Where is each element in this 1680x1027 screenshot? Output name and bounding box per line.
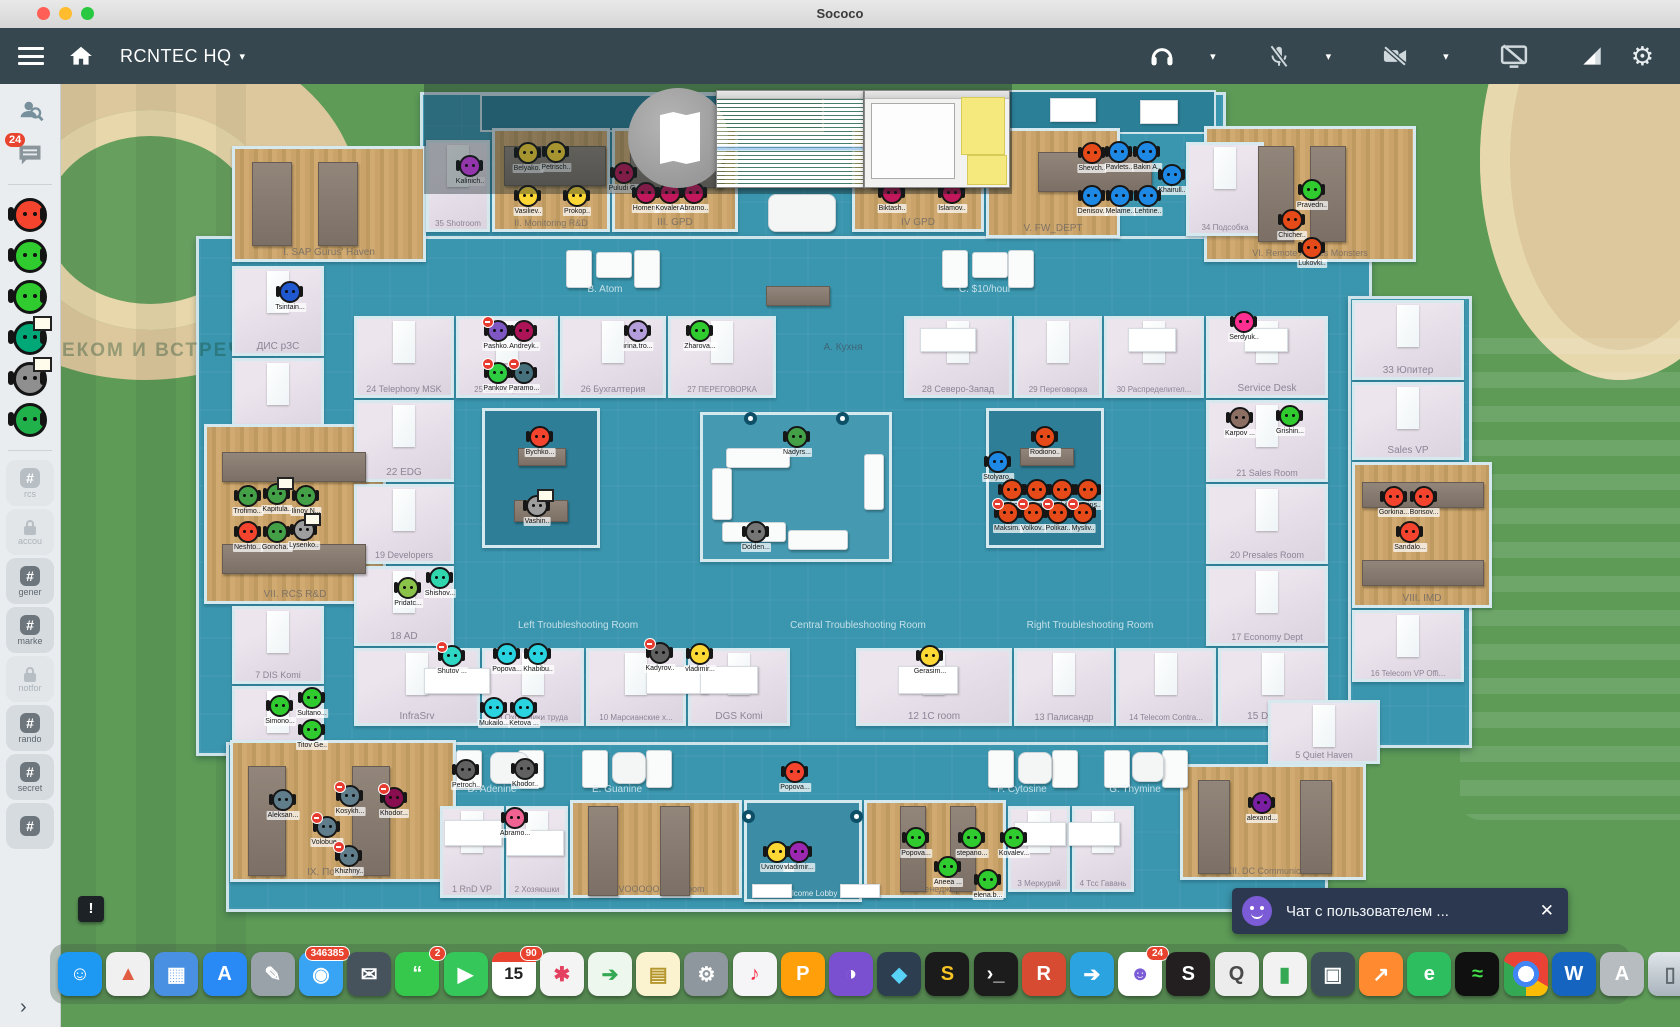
dock-sketch-icon[interactable]: S (925, 952, 969, 996)
dock-pixel-editor-icon[interactable]: ◆ (877, 952, 921, 996)
avatar-gerasim[interactable]: Gerasim... (919, 645, 941, 667)
sidebar-person-avatar-6[interactable] (13, 403, 47, 437)
sidebar-channel-secret[interactable]: #secret (6, 754, 54, 800)
chat-icon[interactable]: 24 (15, 141, 45, 174)
avatar-name-label: Khodor... (379, 809, 409, 818)
avatar-name-label: Popova... (779, 783, 811, 792)
room-label: 26 Бухгалтерия (565, 384, 661, 394)
room-4-тсс-гавань[interactable]: 4 Тсс Гавань (1072, 806, 1134, 892)
avatar-polikar[interactable]: Polikar.. (1047, 502, 1069, 524)
speaker-icon (836, 412, 849, 425)
do-not-disturb-badge (436, 641, 448, 653)
avatar-abramo[interactable]: Abramo... (504, 807, 526, 829)
avatar-denisov[interactable]: Denisov.. (1081, 185, 1103, 207)
avatar-name-label: Sultano... (296, 709, 328, 718)
dock-finder-icon[interactable]: ☺ (58, 952, 102, 996)
avatar-shishov[interactable]: Shishov... (429, 567, 451, 589)
avatar-kovalev[interactable]: Kovalev... (1003, 827, 1025, 849)
avatar-sultano[interactable]: Sultano... (301, 687, 323, 709)
dock-app-folder-icon[interactable]: A (1600, 952, 1644, 996)
room-17-economy-dept[interactable]: 17 Economy Dept (1206, 566, 1328, 646)
dock-mission-control-icon[interactable]: ▦ (154, 952, 198, 996)
do-not-disturb-badge (378, 783, 390, 795)
room-33-юпитер[interactable]: 33 Юпитер (1352, 300, 1464, 380)
screen-share-off-icon[interactable] (1499, 41, 1529, 71)
avatar-name-label: Kovalev... (998, 849, 1030, 858)
avatar-kadyrov[interactable]: Kadyrov.. (649, 642, 671, 664)
avatar-volobue[interactable]: Volobue... (316, 816, 338, 838)
room-label: 20 Presales Room (1211, 550, 1323, 560)
room-label: 22 EDG (359, 467, 449, 478)
channel-label: accou (18, 536, 42, 546)
camera-caret[interactable]: ▾ (1443, 50, 1449, 63)
avatar-melame[interactable]: Melame.. (1109, 185, 1131, 207)
room-label: 7 DIS Komi (237, 670, 319, 680)
room-label: 16 Telecom VP Offi... (1357, 669, 1459, 678)
room-label: IV GPD (857, 217, 979, 228)
room-label: 30 Распределител... (1109, 385, 1199, 394)
sidebar-person-avatar-2[interactable] (13, 239, 47, 273)
avatar-tsintain[interactable]: Tsintain... (279, 281, 301, 303)
screen-share-thumbnail-terminal[interactable] (716, 90, 864, 188)
avatar-name-label: Pavlets.. (1105, 163, 1134, 172)
couch (988, 750, 1014, 788)
avatar-name-label: Kosykh... (335, 807, 366, 816)
dock-preview-icon[interactable]: ✎ (251, 952, 295, 996)
hash-icon: # (20, 468, 40, 488)
window-titlebar: Sococo (0, 0, 1680, 29)
avatar-name-label: Kadyrov.. (644, 664, 675, 673)
room-label: 35 Shotroom (431, 219, 485, 228)
microphone-caret[interactable]: ▾ (1326, 50, 1332, 63)
divider (8, 184, 52, 185)
whiteboard (1140, 100, 1178, 124)
dock-badge: 90 (520, 946, 543, 961)
dock-word-icon[interactable]: W (1552, 952, 1596, 996)
desk (1300, 780, 1332, 874)
room-label: 27 ПЕРЕГОВОРКА (673, 385, 771, 394)
avatar-lehtine[interactable]: Lehtine.. (1137, 185, 1159, 207)
avatar-khodor[interactable]: Khodor... (383, 787, 405, 809)
room-label: 1 RnD VP (445, 884, 499, 894)
room-label: III. GPD (617, 217, 733, 228)
camera-muted-icon[interactable] (1381, 42, 1409, 70)
dock-sococo-icon[interactable]: ☻24 (1118, 952, 1162, 996)
couch (1162, 750, 1188, 788)
avatar-kapitula[interactable]: Kapitula.. (266, 483, 288, 505)
avatar-name-label: Gerasim... (913, 667, 947, 676)
room-label: Service Desk (1211, 383, 1323, 394)
room-13-палисандр[interactable]: 13 Палисандр (1014, 648, 1114, 726)
settings-gear-icon[interactable]: ⚙ (1631, 43, 1654, 69)
room-label: 10 Марсианские х... (591, 713, 681, 722)
avatar-rodiono[interactable]: Rodiono.. (1034, 426, 1056, 448)
dock: ☺▲▦A✎◉346385✉“2▶1590✱➔▤⚙♪P◑◆S›_R➔☻24SQ▮▣… (50, 944, 1630, 1004)
do-not-disturb-badge (992, 498, 1004, 510)
avatar-stepano[interactable]: stepano... (961, 827, 983, 849)
table (768, 194, 836, 232)
desk (252, 162, 292, 246)
avatar-andreyk[interactable]: Andreyk.. (513, 320, 535, 342)
avatar-name-label: Abramo.. (679, 204, 709, 213)
avatar-kosykh[interactable]: Kosykh... (339, 785, 361, 807)
avatar-name-label: Andreyk.. (508, 342, 540, 351)
avatar-name-label: irina.tro... (622, 342, 653, 351)
channel-label: marke (17, 636, 42, 646)
desk (766, 286, 830, 306)
space-name[interactable]: RCNTEC HQ (120, 46, 232, 67)
room-label: V. FW_DEPT (991, 223, 1115, 234)
avatar-pavlets[interactable]: Pavlets.. (1108, 141, 1130, 163)
sidebar-channel-marke[interactable]: #marke (6, 607, 54, 653)
dock-maps-icon[interactable]: ➔ (588, 952, 632, 996)
couch (566, 250, 592, 288)
avatar-name-label: stepano... (956, 849, 989, 858)
avatar-titov-ge[interactable]: Titov Ge.. (301, 719, 323, 741)
headset-icon[interactable] (1148, 42, 1176, 70)
hash-icon: # (20, 713, 40, 733)
sidebar-person-avatar-1[interactable] (13, 198, 47, 232)
sidebar-channel-gener[interactable]: #gener (6, 558, 54, 604)
dock-charts-icon[interactable]: ▮ (1263, 952, 1307, 996)
avatar-name-label: Bychko... (525, 448, 556, 457)
avatar-name-label: Neshto... (233, 543, 263, 552)
dock-pages-icon[interactable]: P (781, 952, 825, 996)
avatar-name-label: Pridatc... (393, 599, 423, 608)
hash-icon: # (20, 615, 40, 635)
dock-safari-icon[interactable]: ◉346385 (299, 952, 343, 996)
app-toolbar: RCNTEC HQ ▾ ▾ ▾ ▾ ⚙ (0, 28, 1680, 84)
avatar-name-label: Abramo... (499, 829, 531, 838)
room-sales-vp[interactable]: Sales VP (1352, 382, 1464, 460)
avatar-karpov[interactable]: Karpov ... (1229, 407, 1251, 429)
do-not-disturb-badge (334, 781, 346, 793)
couch (1008, 250, 1034, 288)
do-not-disturb-badge (311, 812, 323, 824)
avatar-name-label: vladimir... (783, 863, 815, 872)
microphone-muted-icon[interactable] (1266, 43, 1292, 69)
dock-badge: 346385 (305, 946, 350, 961)
dock-notes-icon[interactable]: ▤ (636, 952, 680, 996)
avatar-elena-b[interactable]: elena.b... (977, 869, 999, 891)
avatar-volkov[interactable]: Volkov.. (1022, 502, 1044, 524)
room-29-переговорка[interactable]: 29 Переговорка (1014, 316, 1102, 398)
avatar-name-label: Gorkina... (1378, 508, 1410, 517)
avatar-chicher[interactable]: Chicher.. (1281, 209, 1303, 231)
avatar-popova[interactable]: Popova... (496, 643, 518, 665)
room-14-telecom-contra[interactable]: 14 Telecom Contra... (1116, 648, 1216, 726)
dock-chrome-icon[interactable] (1504, 952, 1548, 996)
speaker-icon (742, 810, 755, 823)
avatar-aleksan[interactable]: Aleksan... (272, 789, 294, 811)
couch (712, 468, 732, 520)
dock-facetime-icon[interactable]: ▶ (444, 952, 488, 996)
avatar-rogins[interactable]: Rogins.. (1077, 479, 1099, 501)
avatar-pravedn[interactable]: Pravedn.. (1301, 179, 1323, 201)
whiteboard (752, 884, 792, 898)
room-21-sales-room[interactable]: 21 Sales Room (1206, 400, 1328, 482)
room-label: 18 AD (359, 631, 449, 642)
avatar-name-label: Serdyuk.. (1228, 333, 1260, 342)
avatar-name-label: Tsintain... (274, 303, 306, 312)
lock-icon (24, 526, 36, 535)
avatar-trofimo[interactable]: Trofimo... (237, 485, 259, 507)
desk (1198, 780, 1230, 874)
avatar-name-label: Aleksan... (267, 811, 300, 820)
avatar-name-label: Karpov ... (1224, 429, 1256, 438)
dock-media-library-icon[interactable]: ▣ (1311, 952, 1355, 996)
sidebar-channel-rando[interactable]: #rando (6, 705, 54, 751)
room-27-переговорка[interactable]: 27 ПЕРЕГОВОРКА (668, 316, 776, 398)
screen-share-indicator-icon (304, 513, 321, 526)
avatar-sandalo[interactable]: Sandalo... (1399, 521, 1421, 543)
channel-label: notfor (18, 683, 41, 693)
room-26-бухгалтерия[interactable]: 26 Бухгалтерия (560, 316, 666, 398)
menu-icon[interactable] (18, 47, 44, 65)
sidebar-channel-accou[interactable]: accou (6, 509, 54, 555)
folded-map-icon (660, 112, 700, 164)
sidebar-channels: #rcsaccou#gener#markenotfor#rando#secret… (6, 457, 54, 852)
sidebar-expand-chevron[interactable]: › (20, 996, 27, 1019)
avatar-shevch[interactable]: Shevch.. (1081, 142, 1103, 164)
screen-share-indicator-icon (277, 477, 294, 490)
avatar-name-label: Dolden... (741, 543, 771, 552)
avatar-nadyrs[interactable]: Nadyrs... (786, 426, 808, 448)
avatar-khizhny[interactable]: Khizhny.. (338, 845, 360, 867)
room-label: DGS Komi (693, 711, 785, 722)
room-label: Sales VP (1357, 445, 1459, 456)
avatar-lysenko[interactable]: Lysenko.. (293, 519, 315, 541)
avatar-pridatc[interactable]: Pridatc... (397, 577, 419, 599)
room-label: 28 Северо-Запад (909, 384, 1007, 394)
headset-caret[interactable]: ▾ (1210, 50, 1216, 63)
alert-flag-icon[interactable]: ! (78, 896, 104, 922)
dock-share-icon[interactable]: ↗ (1359, 952, 1403, 996)
dock-color-picker-icon[interactable]: ◑ (829, 952, 873, 996)
avatar-grishin[interactable]: Grishin... (1279, 405, 1301, 427)
avatar-gorkina[interactable]: Gorkina... (1383, 486, 1405, 508)
avatar-name-label: Mukailo... (478, 719, 510, 728)
do-not-disturb-badge (644, 638, 656, 650)
channel-label: gener (18, 587, 41, 597)
sidebar-person-avatar-4[interactable] (13, 321, 47, 355)
couch (582, 750, 608, 788)
avatar-khodor[interactable]: Khodor.. (514, 758, 536, 780)
area-label-central-troubleshooting-room: Central Troubleshooting Room (790, 620, 926, 631)
avatar-mysliv[interactable]: Mysliv.. (1072, 502, 1094, 524)
avatar-name-label: Melame.. (1105, 207, 1136, 216)
avatar-name-label: Vashin.. (524, 517, 551, 526)
avatar-name-label: Ketova ... (508, 719, 540, 728)
avatar-simono[interactable]: Simono... (269, 695, 291, 717)
dock-slack-icon[interactable]: S (1166, 952, 1210, 996)
dock-system-preferences-icon[interactable]: ⚙ (684, 952, 728, 996)
do-not-disturb-badge (482, 316, 494, 328)
desk (222, 452, 366, 482)
sidebar-channel-partial[interactable]: # (6, 803, 54, 849)
chat-close-icon[interactable]: ✕ (1540, 901, 1554, 921)
avatar-name-label: Lysenko.. (288, 541, 320, 550)
avatar-vashin[interactable]: Vashin.. (526, 495, 548, 517)
room-label: 29 Переговорка (1019, 385, 1097, 394)
sidebar-person-avatar-5[interactable] (13, 362, 47, 396)
avatar-name-label: Titov Ge.. (296, 741, 328, 750)
chat-user-avatar (1242, 896, 1272, 926)
avatar-dolden[interactable]: Dolden... (745, 521, 767, 543)
avatar-maksim[interactable]: Maksim.. (997, 502, 1019, 524)
whiteboard (1050, 98, 1096, 122)
room-label: 33 Юпитер (1357, 365, 1459, 376)
mini-window (871, 103, 955, 179)
do-not-disturb-badge (1067, 498, 1079, 510)
area-label-b-atom: B. Atom (587, 284, 622, 295)
avatar-zharova[interactable]: Zharova... (689, 320, 711, 342)
room-label: 17 Economy Dept (1211, 632, 1323, 642)
dock-launchpad-icon[interactable]: ▲ (106, 952, 150, 996)
screen: ЕКОМ И ВСТРЕЧАМИ VI. Remote Access Monst… (0, 0, 1680, 1027)
whiteboard (840, 884, 880, 898)
couch (726, 448, 790, 468)
dock-calendar-icon[interactable]: 1590 (492, 952, 536, 996)
desk (248, 766, 286, 876)
dock-quicktime-icon[interactable]: Q (1215, 952, 1259, 996)
couch (864, 454, 884, 510)
dock-music-icon[interactable]: ♪ (733, 952, 777, 996)
avatar-popova[interactable]: Popova... (784, 761, 806, 783)
channel-label: rando (18, 734, 41, 744)
avatar-ketova[interactable]: Ketova ... (513, 697, 535, 719)
room-34-подсобка[interactable]: 34 Подсобка (1186, 142, 1264, 236)
avatar-irina-tro[interactable]: irina.tro... (627, 320, 649, 342)
dock-terminal-icon[interactable]: ›_ (974, 952, 1018, 996)
desk (318, 162, 358, 246)
avatar-name-label: Shutov ... (436, 667, 468, 676)
avatar-pankov[interactable]: Pankov .. (487, 362, 509, 384)
avatar-serdyuk[interactable]: Serdyuk.. (1233, 311, 1255, 333)
do-not-disturb-badge (482, 358, 494, 370)
desk (1362, 560, 1484, 586)
avatar-lukovki[interactable]: Lukovki.. (1301, 237, 1323, 259)
do-not-disturb-badge (333, 841, 345, 853)
avatar-name-label: Islamov.. (937, 204, 967, 213)
avatar-khabibu[interactable]: Khabibu.. (527, 643, 549, 665)
dock-telegram-icon[interactable]: ➔ (1070, 952, 1114, 996)
avatar-name-label: Simono... (264, 717, 296, 726)
dock-messages-icon[interactable]: “2 (395, 952, 439, 996)
whiteboard (1128, 328, 1176, 352)
avatar-name-label: alexand... (1246, 814, 1278, 823)
room-19-developers[interactable]: 19 Developers (354, 484, 454, 564)
avatar-mukailo[interactable]: Mukailo... (483, 697, 505, 719)
avatar-borisov[interactable]: Borisov... (1413, 486, 1435, 508)
chat-unread-badge: 24 (5, 133, 25, 147)
room-20-presales-room[interactable]: 20 Presales Room (1206, 484, 1328, 564)
room-label: 2 Хозяюшки (511, 885, 563, 894)
table (1018, 752, 1052, 784)
couch (646, 750, 672, 788)
dock-mail-icon[interactable]: ✉ (347, 952, 391, 996)
speaker-icon (850, 810, 863, 823)
screen-share-thumbnail-desktop[interactable] (864, 90, 1010, 188)
room-label: 19 Developers (359, 550, 449, 560)
lock-icon (24, 673, 36, 682)
room-label: 14 Telecom Contra... (1121, 713, 1211, 722)
sidebar-channel-rcs[interactable]: #rcs (6, 460, 54, 506)
avatar-bychko[interactable]: Bychko... (529, 426, 551, 448)
signal-strength-icon[interactable] (1579, 43, 1605, 69)
speaker-icon (744, 412, 757, 425)
home-icon[interactable] (68, 43, 94, 69)
avatar-stolyaro[interactable]: Stolyaro.. (987, 451, 1009, 473)
avatar-paramo[interactable]: Paramo... (513, 362, 535, 384)
area-label-left-troubleshooting-room: Left Troubleshooting Room (518, 620, 638, 631)
sidebar: 24 #rcsaccou#gener#markenotfor#rando#sec… (0, 84, 61, 1027)
do-not-disturb-badge (1017, 498, 1029, 510)
room-22-edg[interactable]: 22 EDG (354, 400, 454, 482)
avatar-alexand[interactable]: alexand... (1251, 792, 1273, 814)
dock-rubymine-icon[interactable]: R (1022, 952, 1066, 996)
avatar-name-label: Grishin... (1275, 427, 1305, 436)
avatar-ilinov-n[interactable]: Ilinov N... (295, 485, 317, 507)
chat-notification-text: Чат с пользователем ... (1286, 903, 1449, 920)
avatar-name-label: Kapitula.. (261, 505, 292, 514)
space-dropdown-caret[interactable]: ▾ (240, 50, 246, 63)
dock-app-store-icon[interactable]: A (203, 952, 247, 996)
search-people-icon[interactable] (15, 96, 45, 131)
whiteboard (920, 328, 976, 352)
avatar-name-label: Polikar.. (1045, 524, 1072, 533)
room-16-telecom-vp-offi[interactable]: 16 Telecom VP Offi... (1352, 610, 1464, 682)
avatar-name-label: Pravedn.. (1296, 201, 1328, 210)
room-5-quiet-haven[interactable]: 5 Quiet Haven (1268, 700, 1380, 764)
avatar-name-label: Shishov... (424, 589, 456, 598)
avatar-vladimir[interactable]: vladimir... (689, 643, 711, 665)
couch (1104, 750, 1130, 788)
avatar-neshto[interactable]: Neshto... (237, 521, 259, 543)
table (1132, 752, 1164, 782)
dock-trash-icon[interactable]: ▯ (1648, 952, 1680, 996)
avatar-aneea[interactable]: Aneea ... (937, 856, 959, 878)
couch (634, 250, 660, 288)
room-7-dis-komi[interactable]: 7 DIS Komi (232, 606, 324, 684)
avatar-goncha[interactable]: Goncha... (266, 521, 288, 543)
avatar-name-label: Khizhny.. (334, 867, 364, 876)
avatar-name-label: vladimir... (684, 665, 716, 674)
room-24-telephony-msk[interactable]: 24 Telephony MSK (354, 316, 454, 398)
sidebar-person-avatar-3[interactable] (13, 280, 47, 314)
area-label-а-кухня: А. Кухня (824, 342, 863, 353)
dock-activity-monitor-icon[interactable]: ≈ (1455, 952, 1499, 996)
avatar-popova[interactable]: Popova... (905, 827, 927, 849)
area-label-right-troubleshooting-room: Right Troubleshooting Room (1027, 620, 1154, 631)
chat-notification-bar[interactable]: Чат с пользователем ... ✕ (1232, 888, 1568, 934)
avatar-name-label: Volkov.. (1020, 524, 1046, 533)
avatar-pashko[interactable]: Pashko... (487, 320, 509, 342)
avatar-khairull[interactable]: Khairull.. (1161, 164, 1183, 186)
avatar-shutov[interactable]: Shutov ... (441, 645, 463, 667)
avatar-name-label: Borisov... (1409, 508, 1440, 517)
dock-evernote-icon[interactable]: e (1407, 952, 1451, 996)
avatar-vladimir[interactable]: vladimir... (788, 841, 810, 863)
area-label-g-thymine: G. Thymine (1109, 784, 1161, 795)
avatar-name-label: Popova... (900, 849, 932, 858)
avatar-bakin-a[interactable]: Bakin A.. (1136, 141, 1158, 163)
avatar-petroch[interactable]: Petroch.. (455, 759, 477, 781)
avatar-name-label: Rodiono.. (1029, 448, 1061, 457)
sidebar-channel-notfor[interactable]: notfor (6, 656, 54, 702)
screen-share-indicator-icon (33, 357, 52, 372)
dock-photos-icon[interactable]: ✱ (540, 952, 584, 996)
